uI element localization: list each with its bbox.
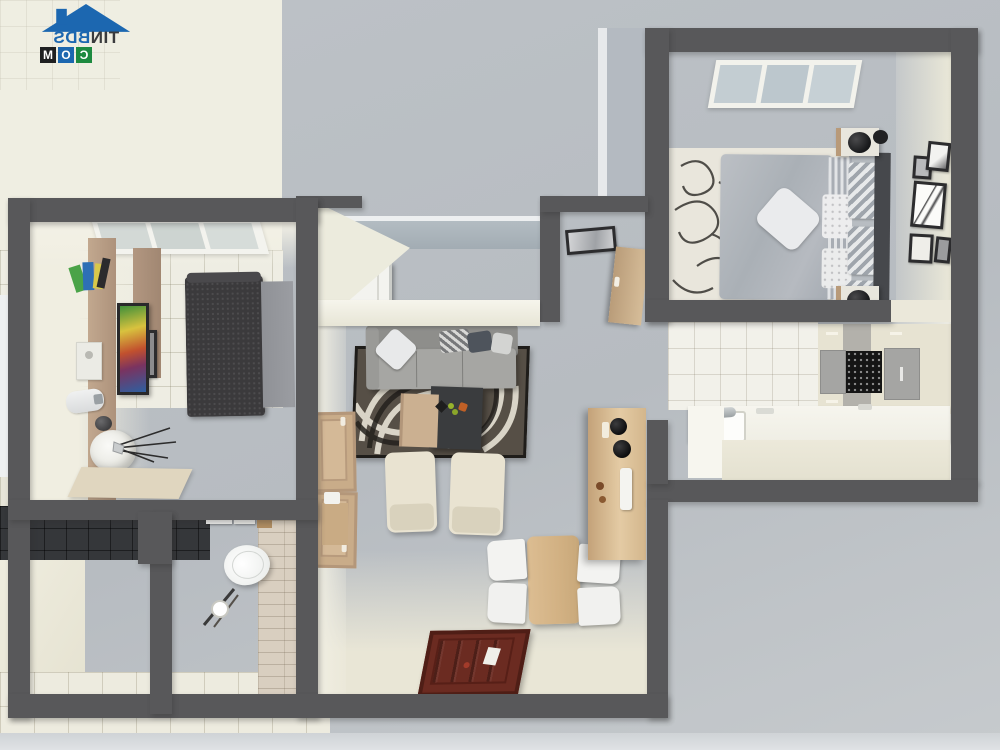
foyer-art [568, 229, 613, 252]
cabinet-decor-1 [596, 482, 604, 490]
master-doorway-gap [891, 300, 951, 322]
cabinet-cream-door-handle-1 [826, 332, 838, 335]
shelf-decor-books [68, 255, 113, 298]
gallery-art-3 [913, 184, 943, 226]
kitchen-counter-front [722, 440, 950, 480]
cabinet-towel [620, 468, 632, 510]
cabinet-gray-door-left [820, 350, 846, 394]
armchair-left [385, 451, 438, 533]
cabinet-gray-door-right [884, 348, 920, 400]
second-bed-dark-blanket [185, 276, 265, 417]
master-skylight [708, 60, 862, 108]
wall-mounted-tv [117, 303, 149, 395]
armchair-left-back [389, 503, 434, 531]
second-skylight-pane-2 [150, 223, 205, 249]
sideboard-white-object [324, 492, 340, 504]
wall-storage-stub [138, 512, 172, 564]
gallery-frame-5 [934, 236, 953, 264]
small-sideboard [322, 503, 348, 545]
sectional-sofa [366, 324, 519, 395]
dining-chair-left-1 [487, 539, 528, 582]
bed-headboard [873, 153, 891, 303]
white-box-shelf [76, 342, 102, 380]
logo-tld-m: M [40, 47, 56, 63]
cabinet-decor-2 [599, 496, 606, 503]
wall-kitchen-left-segment [647, 420, 668, 484]
tinbds-logo: TINBDS C O M [38, 2, 134, 64]
cabinet-cream-door-handle-3 [890, 332, 902, 335]
master-bed [717, 151, 891, 303]
floor-plan-render: TINBDS C O M [0, 0, 1000, 750]
logo-tld-row: C O M [40, 47, 92, 63]
wall-dining-right [647, 500, 668, 718]
sofa-armrest-left [366, 328, 380, 390]
logo-brand-prefix: TIN [90, 28, 119, 47]
kitchen-counter-left-face [688, 406, 724, 478]
toilet-lid-line [230, 549, 266, 581]
second-bedroom-rug [68, 467, 193, 499]
gallery-frame-3 [910, 181, 947, 230]
pendant-lamp [873, 130, 888, 144]
bathroom-brick-wall [258, 520, 296, 696]
wall-leftwing-top [8, 198, 318, 222]
wall-right [951, 28, 978, 484]
wall-leftwing-right [296, 198, 318, 718]
second-bed [185, 271, 297, 417]
table-lamp-top [848, 132, 871, 153]
sofa-pillow-light [490, 332, 513, 355]
box-dial [85, 351, 93, 359]
kitchen-counter-item-1 [756, 408, 774, 414]
side-tray-table [399, 393, 439, 447]
entrance-door-flat [417, 629, 530, 697]
gallery-frame-2 [926, 141, 952, 172]
cabinet-cream-door-handle-2 [826, 400, 838, 403]
tv-side-art [150, 333, 154, 375]
wall-kitchen-bottom [647, 480, 978, 502]
second-skylight [91, 218, 269, 254]
closet-door-upper [313, 412, 356, 493]
armchair-right-back [452, 506, 501, 534]
cabinet-black-glass-panel [846, 351, 882, 393]
kitchen-upper-cabinets [818, 324, 951, 414]
decor-sticks [108, 420, 178, 465]
wall-master-left [645, 28, 669, 322]
door-handle [614, 277, 620, 287]
door-panel-grooves [430, 637, 515, 684]
exterior-shaft-block [598, 28, 645, 200]
tall-wood-cabinet [588, 408, 646, 560]
gallery-frame-4 [908, 233, 933, 263]
second-skylight-pane-3 [203, 223, 258, 249]
wall-master-top [645, 28, 978, 52]
sofa-pillow-patterned [439, 328, 471, 353]
tv-side-frame [147, 330, 157, 378]
skylight-pane-1 [714, 65, 763, 103]
table-decor-green-2 [452, 409, 458, 415]
dining-chair-left-2 [487, 582, 527, 624]
dining-table [527, 535, 581, 624]
skylight-pane-3 [808, 65, 857, 103]
hand-shower [194, 585, 244, 635]
kitchen-backsplash-tiles [668, 322, 818, 410]
wall-master-bottom [645, 300, 891, 322]
wall-leftwing-left [8, 198, 30, 718]
closet-door-upper-handle [340, 417, 345, 426]
bottom-light-band [0, 733, 1000, 750]
towel-overlap-fix [206, 506, 272, 518]
logo-tld-o: O [58, 47, 74, 63]
skylight-pane-2 [761, 65, 810, 103]
gallery-art-2 [929, 144, 948, 169]
table-decor-green-1 [448, 403, 454, 409]
wall-bottom [8, 694, 668, 718]
second-bed-gray-edge [261, 281, 295, 408]
foyer-art-frame [565, 226, 617, 255]
armchair-right [449, 452, 506, 536]
book-dark [97, 258, 111, 289]
gallery-art-4 [911, 237, 930, 261]
wall-foyer-left [540, 196, 560, 322]
dining-chair-right-2 [577, 586, 621, 626]
cabinet-knob-2 [613, 440, 631, 458]
foyer-open-door [608, 246, 649, 325]
second-bed-fold [187, 272, 261, 283]
logo-brand-suffix: BDS [53, 28, 90, 47]
cabinet-white-handle [602, 422, 609, 438]
closet-door-upper-inner [320, 419, 347, 481]
gallery-art-5 [937, 240, 949, 261]
cabinet-handle [900, 367, 903, 381]
wall-foyer-top [540, 196, 648, 212]
logo-tld-c: C [76, 47, 92, 63]
cabinet-knob-1 [610, 418, 627, 435]
bottle-cap [93, 394, 103, 405]
logo-brand-text: TINBDS [38, 28, 134, 48]
kitchen-counter-item-2 [858, 404, 872, 410]
sofa-pillow-dark [466, 330, 493, 353]
wall-living-top-face [318, 300, 540, 326]
